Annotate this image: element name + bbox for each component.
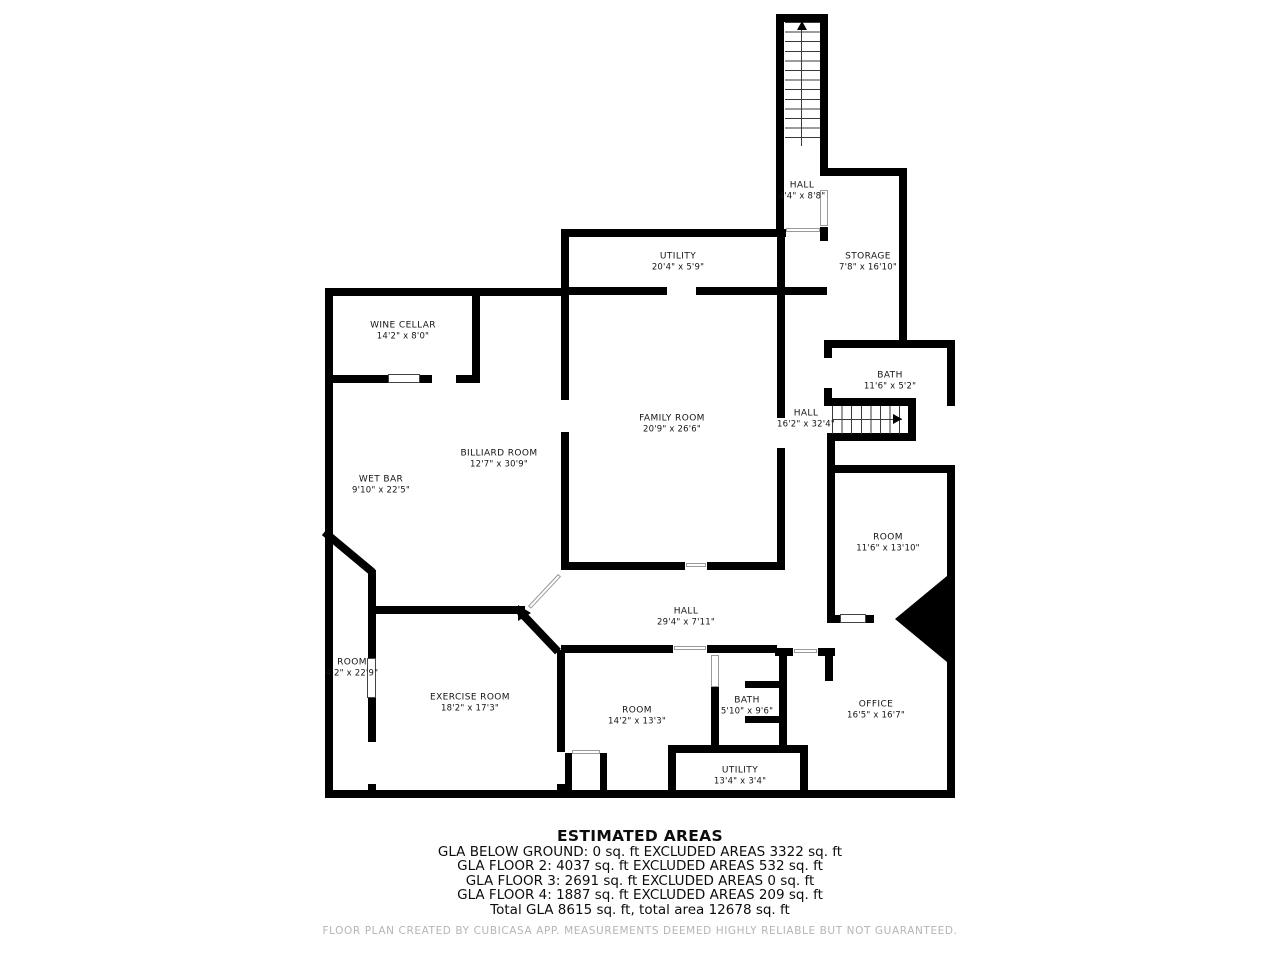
room-name: BILLIARD ROOM xyxy=(460,449,537,459)
wall xyxy=(711,687,719,753)
wall xyxy=(668,753,676,792)
room-label-hall-upper: HALL 4'4" x 8'8" xyxy=(779,181,826,202)
room-dims: 14'2" x 13'3" xyxy=(608,717,666,727)
estimated-areas-title: ESTIMATED AREAS xyxy=(0,827,1280,845)
window-symbol xyxy=(840,614,866,623)
wall xyxy=(779,653,787,745)
room-dims: 7'8" x 16'10" xyxy=(839,263,897,273)
room-dims: 20'9" x 26'6" xyxy=(639,425,705,435)
wall xyxy=(561,562,685,570)
room-dims: 16'2" x 32'4" xyxy=(777,420,835,430)
estimated-areas-block: ESTIMATED AREAS GLA BELOW GROUND: 0 sq. … xyxy=(0,827,1280,917)
room-name: ROOM xyxy=(608,706,666,716)
room-name: ROOM xyxy=(326,658,378,668)
wall xyxy=(325,790,955,798)
room-label-storage: STORAGE 7'8" x 16'10" xyxy=(839,252,897,273)
room-name: EXERCISE ROOM xyxy=(430,693,510,703)
floor-plan: HALL 4'4" x 8'8" STORAGE 7'8" x 16'10" U… xyxy=(0,0,1280,960)
room-name: HALL xyxy=(779,181,826,191)
room-label-exercise-room: EXERCISE ROOM 18'2" x 17'3" xyxy=(430,693,510,714)
wall xyxy=(565,753,572,791)
room-name: WINE CELLAR xyxy=(370,321,436,331)
wall xyxy=(800,745,808,792)
room-dims: 20'4" x 5'9" xyxy=(652,263,704,273)
room-dims: 29'4" x 7'11" xyxy=(657,618,715,628)
wall xyxy=(325,375,388,383)
wall xyxy=(561,294,569,400)
wall xyxy=(368,570,376,658)
room-dims: 4'2" x 22'9" xyxy=(326,669,378,679)
wall xyxy=(472,288,480,383)
wall xyxy=(561,432,569,570)
room-label-room-narrow: ROOM 4'2" x 22'9" xyxy=(326,658,378,679)
room-dims: 11'6" x 13'10" xyxy=(856,544,920,554)
room-label-office: OFFICE 16'5" x 16'7" xyxy=(847,700,905,721)
stairs-right-arrow-icon xyxy=(893,414,902,424)
wall xyxy=(899,168,907,348)
room-name: STORAGE xyxy=(839,252,897,262)
wall xyxy=(325,288,569,296)
gla-line: GLA FLOOR 2: 4037 sq. ft EXCLUDED AREAS … xyxy=(0,859,1280,873)
wall xyxy=(707,562,785,570)
room-label-bath-upper: BATH 11'6" x 5'2" xyxy=(864,371,916,392)
room-name: FAMILY ROOM xyxy=(639,414,705,424)
wall xyxy=(745,716,779,723)
room-name: HALL xyxy=(657,607,715,617)
door-opening xyxy=(674,646,706,650)
staircase-side xyxy=(832,406,904,434)
stair-rail xyxy=(832,419,902,420)
wall xyxy=(824,340,955,348)
gla-total-line: Total GLA 8615 sq. ft, total area 12678 … xyxy=(0,903,1280,917)
wall xyxy=(420,375,432,383)
room-dims: 14'2" x 8'0" xyxy=(370,332,436,342)
filled-wedge-wall xyxy=(895,571,953,667)
room-dims: 11'6" x 5'2" xyxy=(864,382,916,392)
wall xyxy=(456,375,480,383)
wall xyxy=(372,606,525,614)
wall xyxy=(745,681,779,688)
window-symbol xyxy=(388,374,420,383)
room-label-utility-bottom: UTILITY 13'4" x 3'4" xyxy=(714,766,766,787)
wall xyxy=(777,448,785,570)
room-label-billiard-room: BILLIARD ROOM 12'7" x 30'9" xyxy=(460,449,537,470)
door-opening xyxy=(528,574,561,609)
room-label-bath-lower: BATH 5'10" x 9'6" xyxy=(721,696,773,717)
wall xyxy=(696,287,827,295)
room-label-hall-horizontal: HALL 29'4" x 7'11" xyxy=(657,607,715,628)
wall xyxy=(707,645,777,653)
wall xyxy=(561,287,667,295)
room-dims: 4'4" x 8'8" xyxy=(779,192,826,202)
wall xyxy=(827,615,841,623)
wall xyxy=(827,465,955,473)
wall xyxy=(557,650,565,752)
wall xyxy=(368,698,376,742)
room-name: ROOM xyxy=(856,533,920,543)
staircase-upper xyxy=(785,22,820,146)
room-name: BATH xyxy=(721,696,773,706)
wall xyxy=(824,340,832,358)
wall xyxy=(825,653,833,681)
stairs-up-arrow-icon xyxy=(797,21,807,30)
wall xyxy=(820,227,828,241)
wall xyxy=(668,745,808,753)
stair-rail xyxy=(801,28,802,146)
room-name: OFFICE xyxy=(847,700,905,710)
room-name: WET BAR xyxy=(352,475,410,485)
gla-line: GLA FLOOR 4: 1887 sq. ft EXCLUDED AREAS … xyxy=(0,888,1280,902)
room-dims: 5'10" x 9'6" xyxy=(721,707,773,717)
room-dims: 13'4" x 3'4" xyxy=(714,777,766,787)
door-opening xyxy=(786,228,820,232)
wall xyxy=(820,168,907,176)
door-opening xyxy=(794,649,817,653)
door-opening xyxy=(686,563,706,567)
room-name: BATH xyxy=(864,371,916,381)
room-dims: 18'2" x 17'3" xyxy=(430,704,510,714)
wall xyxy=(827,473,835,623)
wall xyxy=(824,398,916,406)
room-label-room-right: ROOM 11'6" x 13'10" xyxy=(856,533,920,554)
wall xyxy=(947,340,955,406)
door-opening xyxy=(572,750,600,754)
wall xyxy=(561,229,569,294)
room-name: HALL xyxy=(777,409,835,419)
wall xyxy=(600,753,607,791)
room-dims: 9'10" x 22'5" xyxy=(352,486,410,496)
gla-line: GLA FLOOR 3: 2691 sq. ft EXCLUDED AREAS … xyxy=(0,874,1280,888)
wall xyxy=(866,615,874,623)
room-label-room-bottom: ROOM 14'2" x 13'3" xyxy=(608,706,666,727)
room-label-wine-cellar: WINE CELLAR 14'2" x 8'0" xyxy=(370,321,436,342)
wall xyxy=(777,237,785,418)
room-label-wet-bar: WET BAR 9'10" x 22'5" xyxy=(352,475,410,496)
wall xyxy=(561,645,673,653)
room-label-hall-vertical: HALL 16'2" x 32'4" xyxy=(777,409,835,430)
room-dims: 12'7" x 30'9" xyxy=(460,460,537,470)
wall xyxy=(820,14,828,176)
door-opening xyxy=(711,655,719,687)
room-name: UTILITY xyxy=(714,766,766,776)
room-name: UTILITY xyxy=(652,252,704,262)
room-label-family-room: FAMILY ROOM 20'9" x 26'6" xyxy=(639,414,705,435)
wall xyxy=(831,433,916,441)
wall xyxy=(561,229,786,237)
gla-line: GLA BELOW GROUND: 0 sq. ft EXCLUDED AREA… xyxy=(0,845,1280,859)
room-label-utility-top: UTILITY 20'4" x 5'9" xyxy=(652,252,704,273)
credit-footer: FLOOR PLAN CREATED BY CUBICASA APP. MEAS… xyxy=(0,925,1280,937)
room-dims: 16'5" x 16'7" xyxy=(847,711,905,721)
